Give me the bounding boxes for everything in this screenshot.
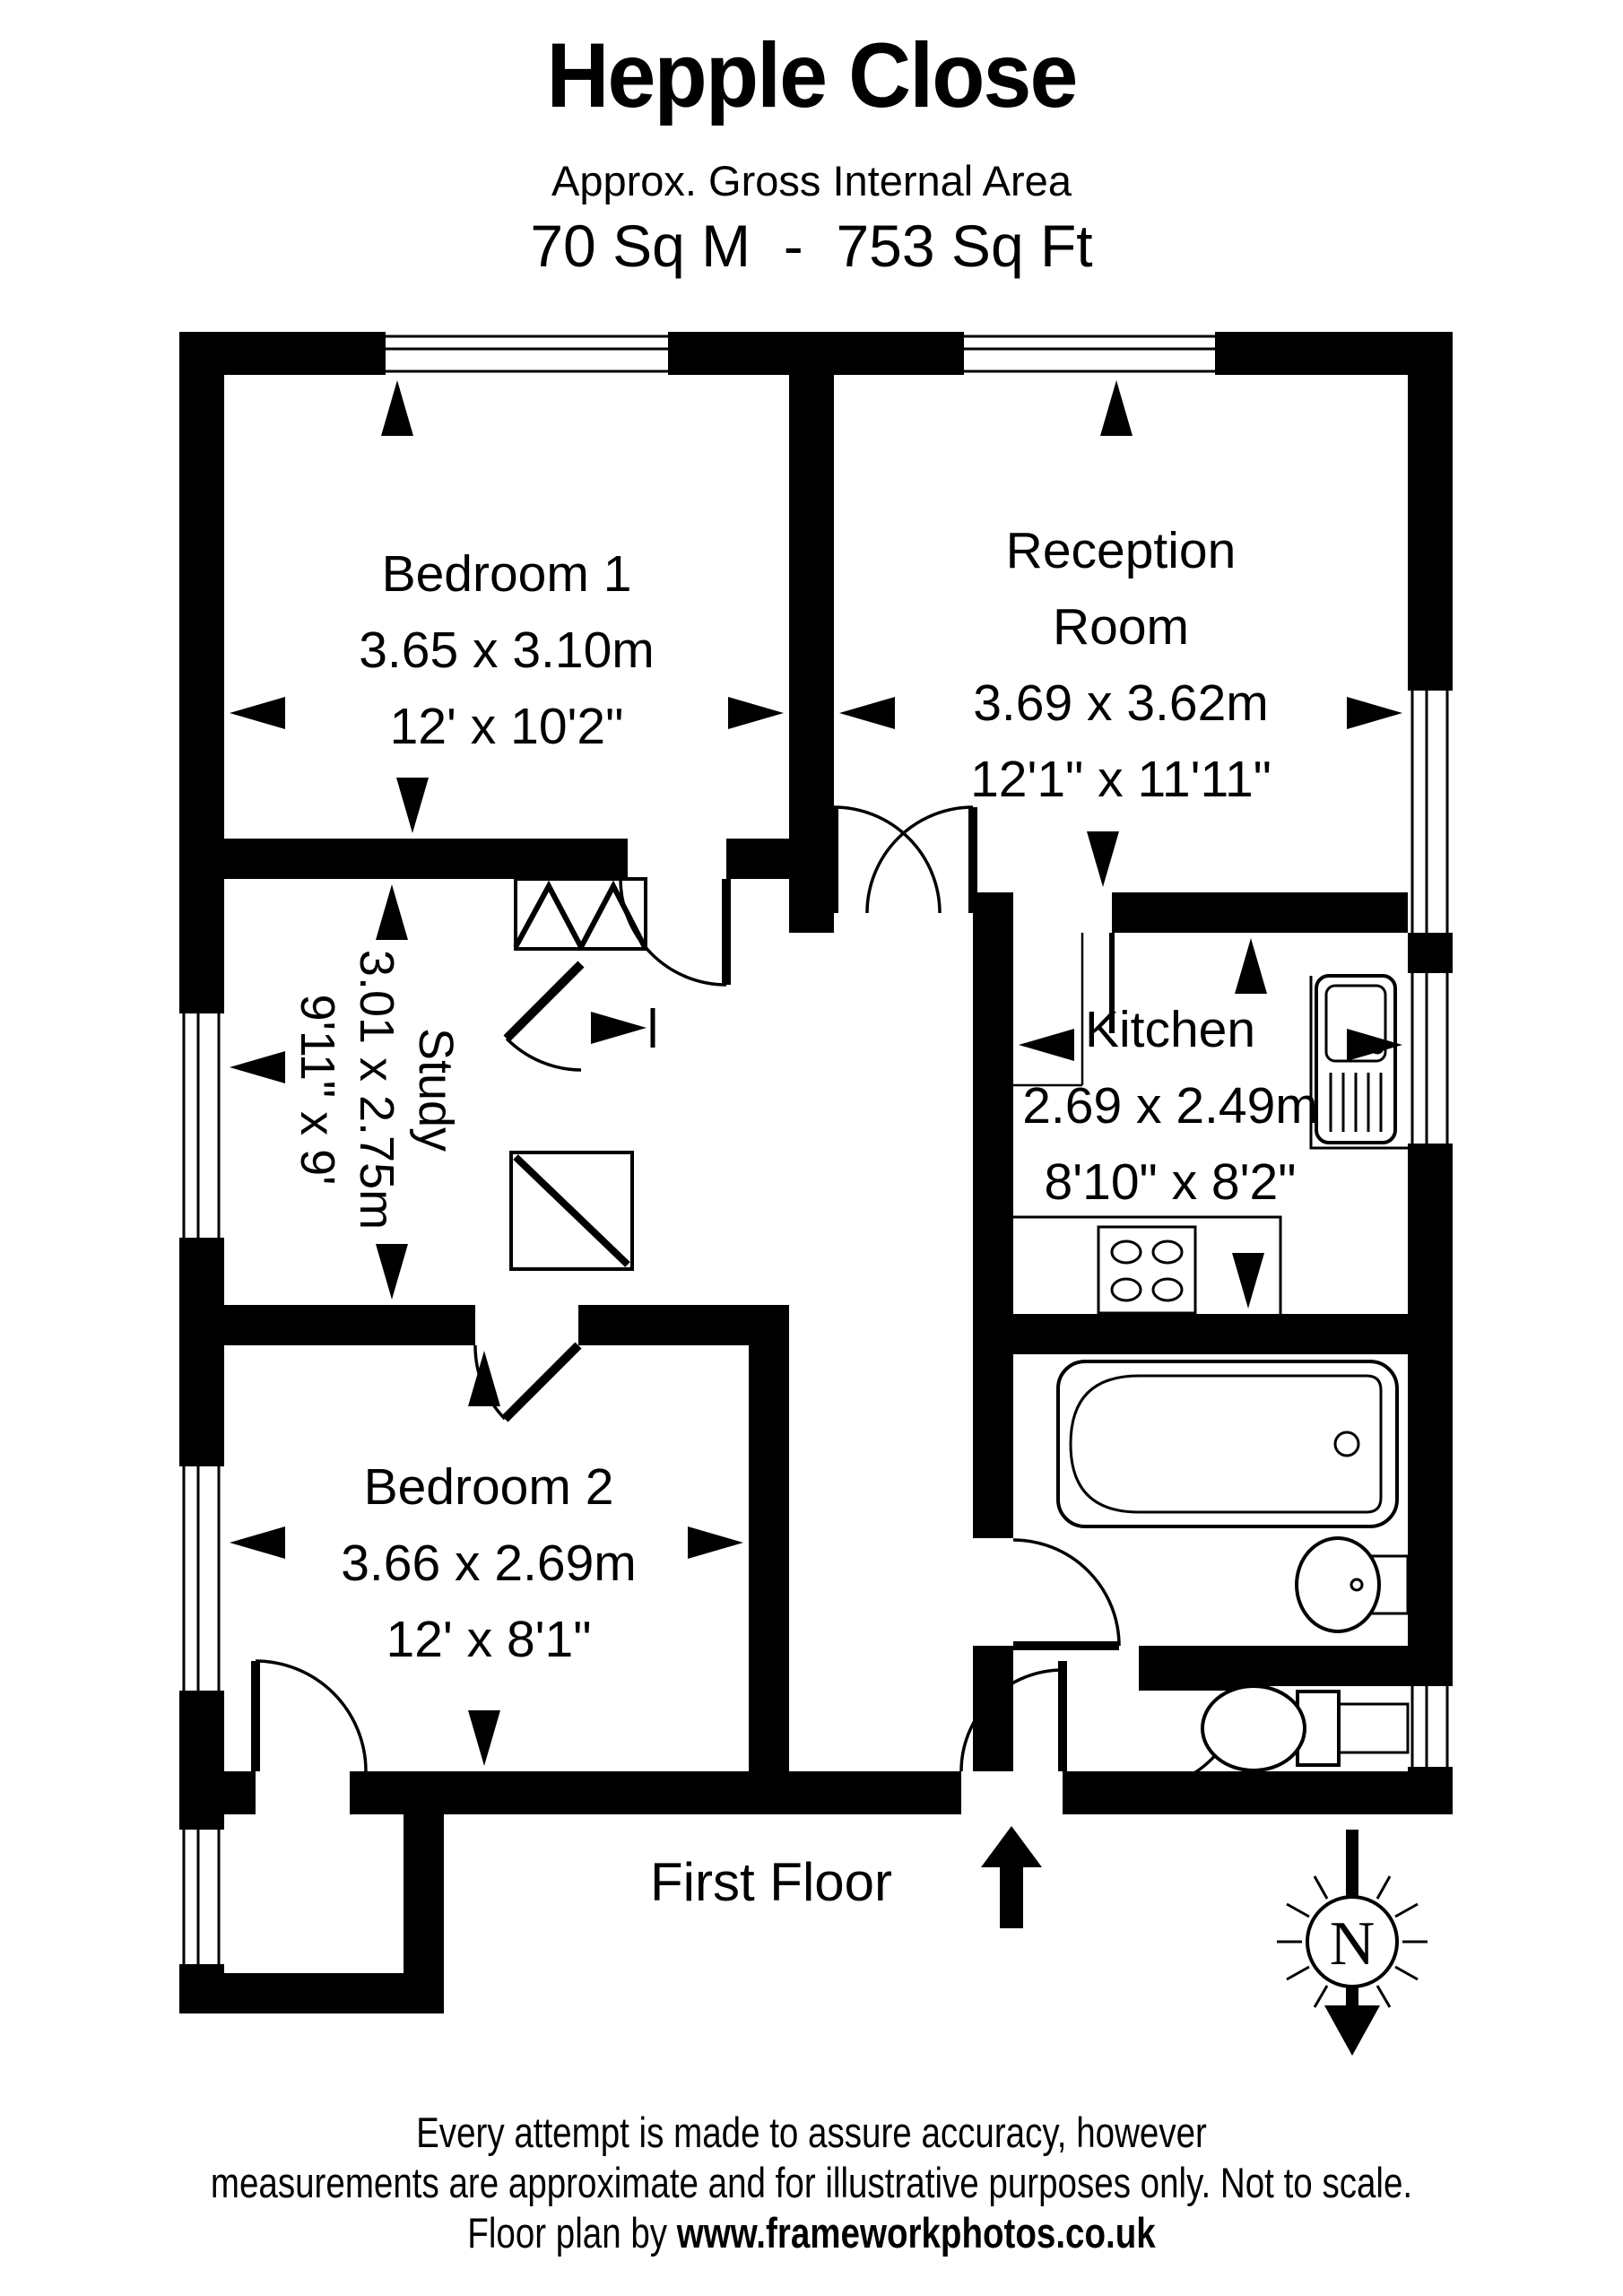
room-size-imperial: 12' x 8'1" — [265, 1602, 713, 1678]
dimension-arrow — [1232, 1253, 1264, 1309]
window-porch — [179, 1830, 224, 1964]
window-reception-top — [964, 332, 1215, 375]
dimension-arrow — [1235, 938, 1267, 994]
wall-segment — [1063, 1771, 1453, 1814]
floor-plan-page: Hepple Close Approx. Gross Internal Area… — [0, 0, 1623, 2296]
dimension-arrow — [230, 1051, 285, 1083]
disclaimer-line2: measurements are approximate and for ill… — [146, 2158, 1477, 2208]
wall-segment — [789, 375, 834, 933]
room-size-metric: 3.69 x 3.62m — [870, 665, 1372, 742]
wall-segment — [973, 892, 1013, 933]
room-size-imperial: 12'1" x 11'11" — [870, 742, 1372, 818]
room-size-imperial: 12' x 10'2" — [282, 689, 731, 765]
wall-segment — [973, 1646, 1013, 1771]
wall-segment — [578, 1305, 789, 1345]
wall-segment — [179, 1771, 256, 1814]
dimension-arrow — [468, 1351, 500, 1406]
window-study — [179, 1013, 224, 1238]
compass-north-letter: N — [1330, 1909, 1376, 1979]
wall-segment — [350, 1771, 961, 1814]
room-name: Study — [406, 937, 465, 1242]
wall-segment — [1112, 892, 1453, 933]
dimension-arrow — [468, 1710, 500, 1766]
room-name: Bedroom 2 — [265, 1449, 713, 1526]
dimension-arrow — [728, 697, 784, 729]
dimension-arrow — [396, 778, 429, 833]
wall-segment — [749, 1345, 789, 1771]
room-size-imperial: 8'10" x 8'2" — [950, 1144, 1390, 1221]
room-size-metric: 3.01 x 2.75m — [347, 937, 406, 1242]
hob-icon — [1098, 1227, 1195, 1313]
dimension-arrow — [376, 884, 408, 940]
wall-segment — [179, 332, 1453, 375]
room-size-metric: 3.65 x 3.10m — [282, 613, 731, 689]
wall-segment — [1139, 1646, 1453, 1686]
credit-text: Floor plan by — [467, 2209, 677, 2257]
bath-tub-icon — [1058, 1361, 1397, 1526]
room-label-bedroom2: Bedroom 2 3.66 x 2.69m 12' x 8'1" — [265, 1449, 713, 1678]
wall-segment — [973, 1354, 1013, 1538]
window-kitchen — [1408, 973, 1453, 1144]
wall-segment — [179, 839, 628, 879]
room-label-bedroom1: Bedroom 1 3.65 x 3.10m 12' x 10'2" — [282, 536, 731, 765]
disclaimer-line3: Floor plan by www.frameworkphotos.co.uk — [146, 2208, 1477, 2258]
north-arrow-head — [1324, 2005, 1380, 2056]
wall-segment — [179, 1305, 475, 1345]
room-size-imperial: 9'11" x 9' — [288, 937, 347, 1242]
wall-segment — [404, 1814, 444, 2013]
window-bedroom2 — [179, 1466, 224, 1691]
wash-basin-icon — [1297, 1538, 1408, 1631]
credit-url: www.frameworkphotos.co.uk — [677, 2209, 1156, 2257]
dimension-arrow — [381, 380, 413, 436]
room-size-metric: 3.66 x 2.69m — [265, 1526, 713, 1602]
dimension-arrow — [1100, 380, 1133, 436]
wall-segment — [726, 839, 789, 879]
door-study — [507, 964, 581, 1070]
wall-segment — [973, 1314, 1453, 1354]
room-name: Bedroom 1 — [282, 536, 731, 613]
room-label-reception: Reception Room 3.69 x 3.62m 12'1" x 11'1… — [870, 513, 1372, 818]
dimension-arrow — [1087, 831, 1119, 887]
dimension-arrow — [376, 1244, 408, 1300]
bathroom-fixtures — [1058, 1361, 1408, 1631]
window-reception-right — [1408, 691, 1453, 933]
north-arrow-shaft — [1346, 1986, 1358, 2007]
door-bathroom — [1013, 1540, 1119, 1646]
room-label-kitchen: Kitchen 2.69 x 2.49m 8'10" x 8'2" — [950, 992, 1390, 1221]
disclaimer-line1: Every attempt is made to assure accuracy… — [146, 2108, 1477, 2158]
disclaimer: Every attempt is made to assure accuracy… — [146, 2108, 1477, 2258]
cupboards — [511, 879, 646, 1269]
room-label-study: Study 3.01 x 2.75m 9'11" x 9' — [288, 937, 465, 1242]
floor-label: First Floor — [592, 1851, 950, 1913]
window-bedroom1 — [386, 332, 668, 375]
cupboard-study — [511, 1152, 632, 1269]
dimension-arrow — [230, 697, 285, 729]
cupboard-hall — [516, 879, 646, 949]
door-reception-right-leaf — [867, 807, 973, 913]
compass: N — [1277, 1830, 1428, 2056]
room-name: Room — [870, 589, 1372, 665]
window-wc — [1408, 1686, 1453, 1767]
wc-fixtures — [1202, 1686, 1408, 1770]
room-name: Kitchen — [950, 992, 1390, 1068]
toilet-icon — [1202, 1686, 1408, 1770]
door-reception-left-leaf — [834, 807, 940, 913]
entrance-arrow-icon — [981, 1826, 1042, 1928]
dimension-arrow — [591, 1012, 647, 1044]
room-name: Reception — [870, 513, 1372, 589]
room-size-metric: 2.69 x 2.49m — [950, 1068, 1390, 1144]
north-arrow-shaft — [1346, 1830, 1358, 1898]
